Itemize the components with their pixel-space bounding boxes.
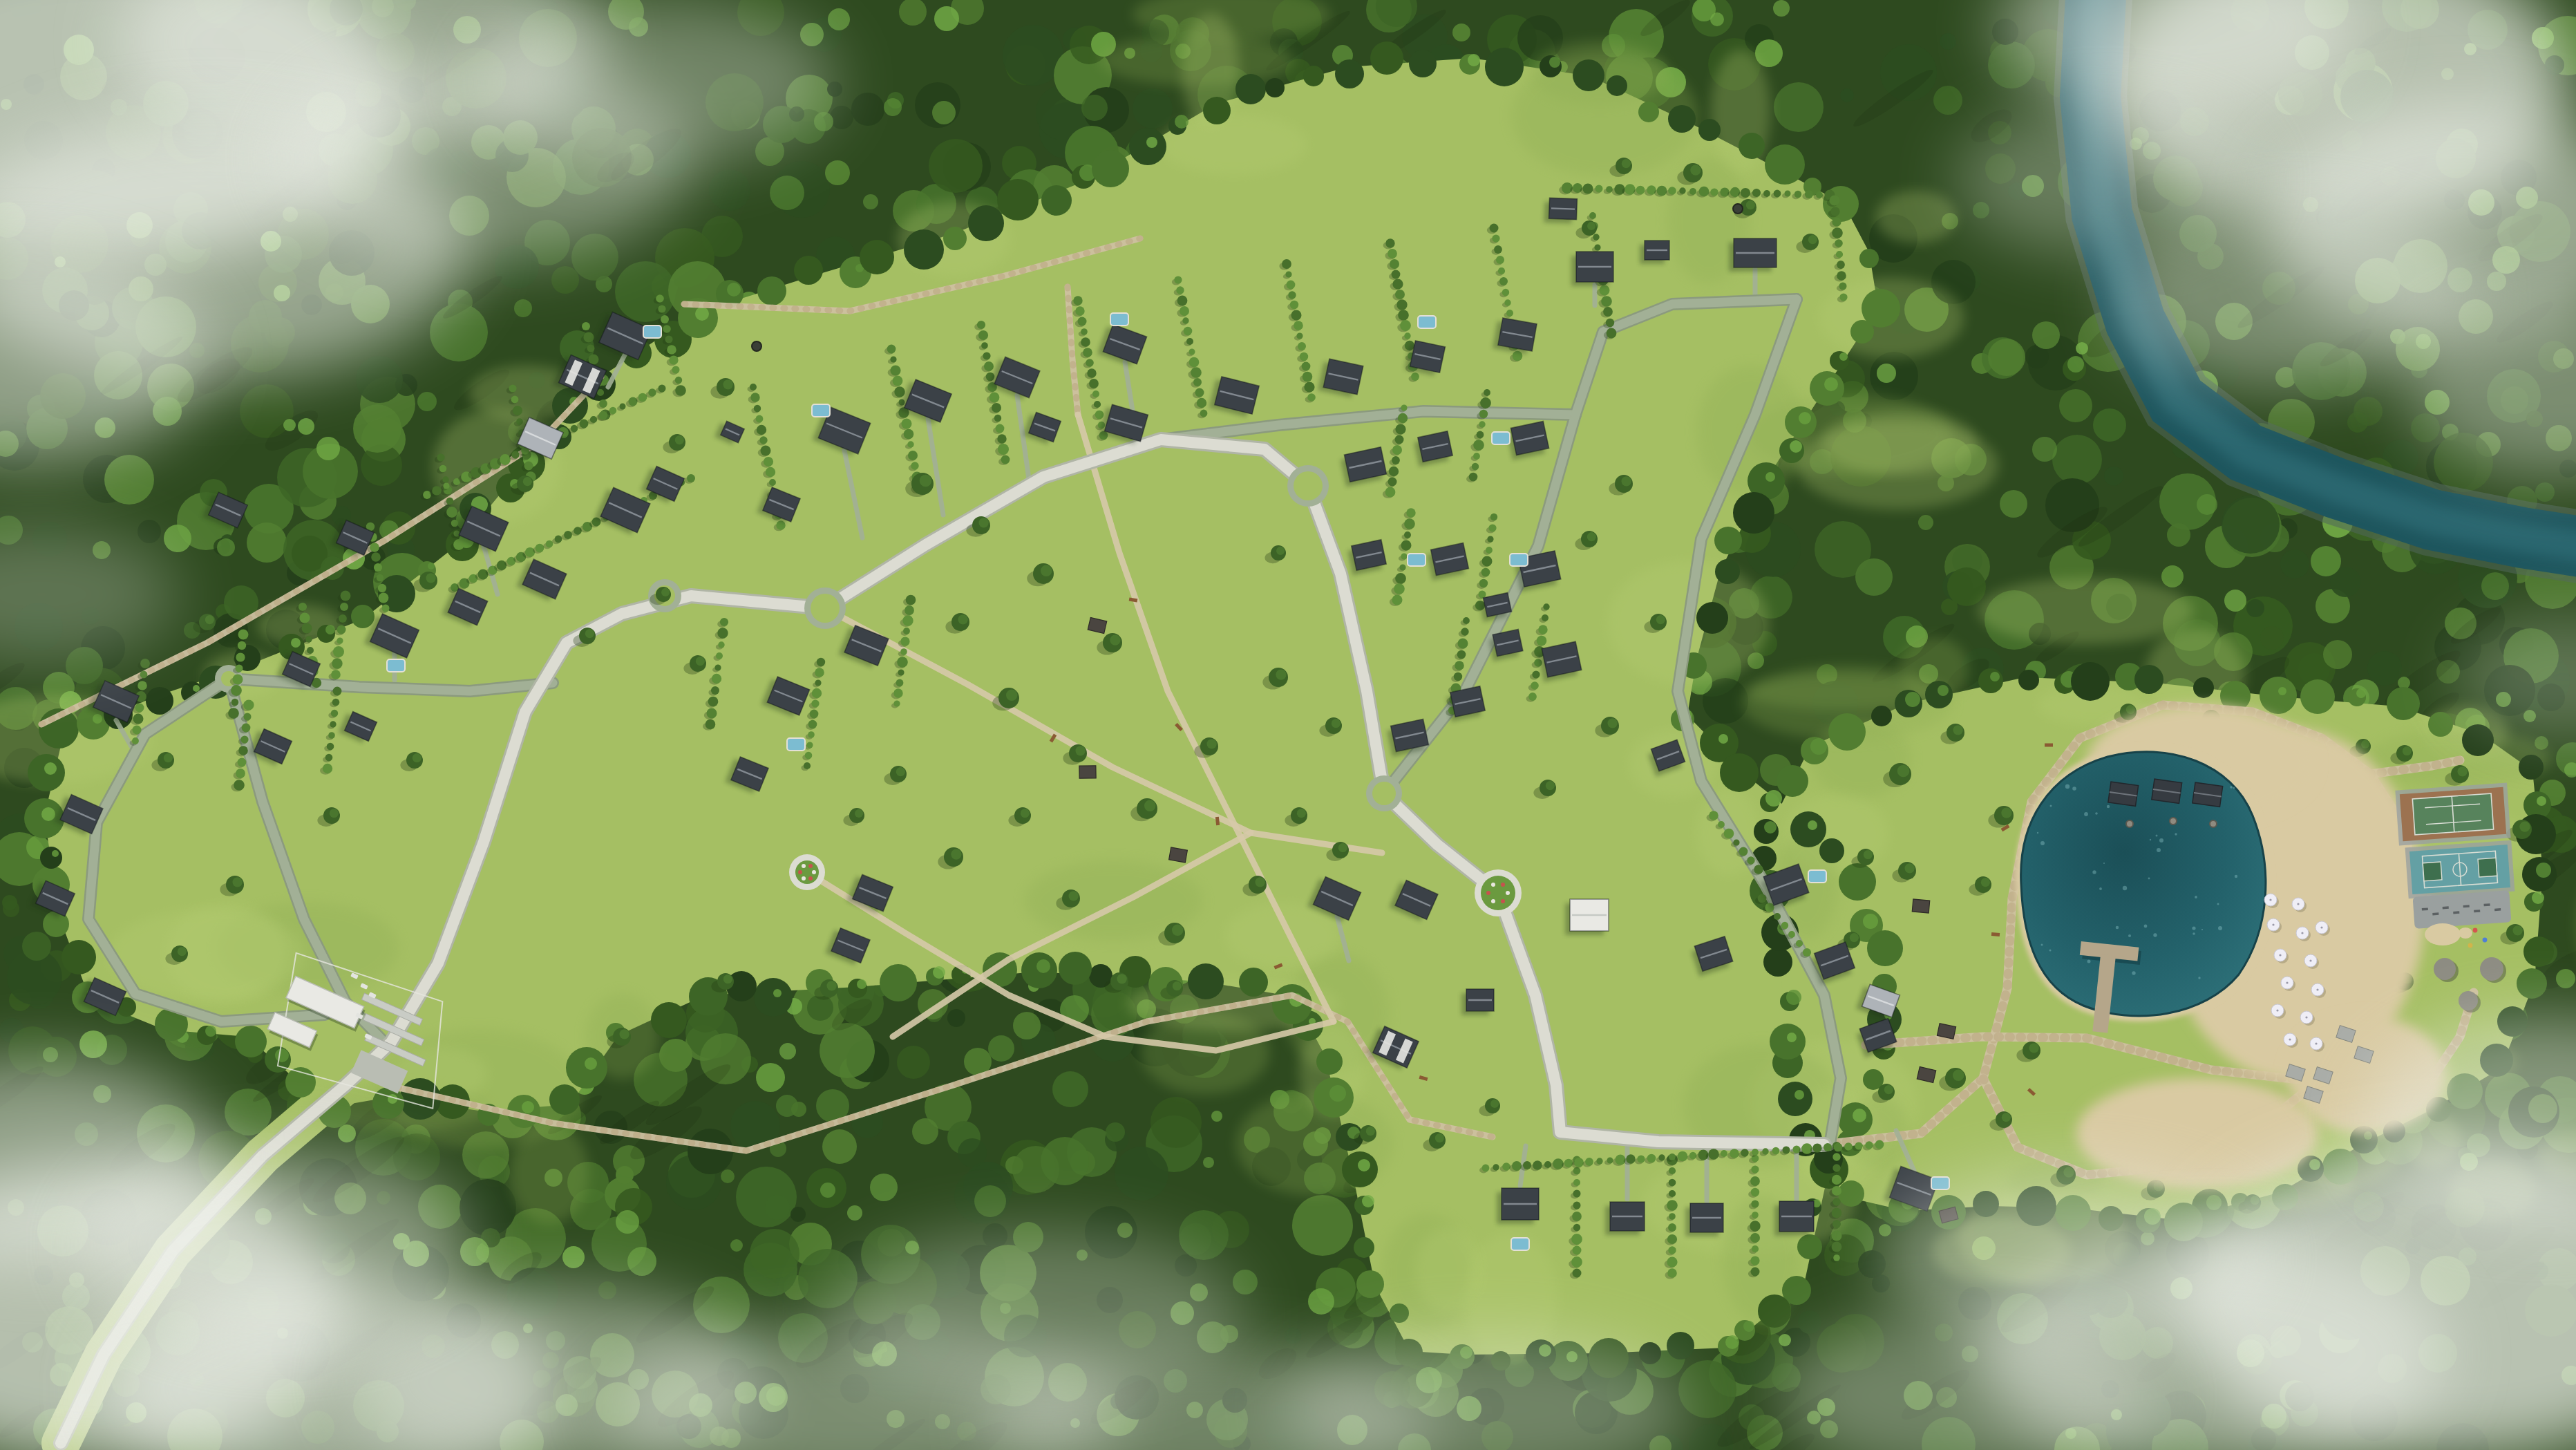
edge-tree bbox=[1335, 59, 1364, 88]
edge-tree-highlight bbox=[727, 283, 741, 296]
roundabout-flower bbox=[1501, 899, 1505, 903]
hedge-bush bbox=[1837, 271, 1846, 281]
hedge-bush bbox=[1606, 319, 1614, 327]
edge-tree-highlight bbox=[193, 685, 200, 692]
hedge-bush bbox=[242, 724, 251, 733]
edge-tree bbox=[1059, 952, 1092, 985]
hedge-bush bbox=[1741, 1149, 1748, 1156]
hedge-bush bbox=[1189, 357, 1200, 368]
hedge-bush bbox=[332, 699, 340, 706]
edge-tree-highlight bbox=[1990, 672, 2000, 681]
forest-tree-blob bbox=[830, 106, 853, 129]
water-sparkle bbox=[2092, 870, 2096, 874]
hedge-bush bbox=[328, 732, 335, 739]
forest-tree-highlight bbox=[316, 437, 340, 460]
hedge-bush bbox=[1458, 639, 1468, 649]
hedge-bush bbox=[1844, 1142, 1853, 1151]
hedge-bush bbox=[509, 384, 516, 392]
umbrella-pole bbox=[2305, 1016, 2307, 1018]
forest-tree-highlight bbox=[2067, 356, 2084, 373]
forest-tree-blob bbox=[736, 1167, 797, 1227]
edge-tree bbox=[2428, 712, 2453, 737]
hedge-bush bbox=[815, 679, 821, 686]
hedge-bush bbox=[1752, 1245, 1759, 1252]
water-sparkle bbox=[2095, 812, 2098, 815]
hedge-bush bbox=[140, 659, 150, 668]
edge-tree bbox=[1370, 41, 1403, 75]
forest-tree-blob bbox=[958, 1138, 987, 1167]
hedge-bush bbox=[708, 697, 719, 707]
grass-patch bbox=[1711, 50, 1770, 174]
edge-tree bbox=[1573, 59, 1604, 91]
hedge-bush bbox=[661, 315, 669, 323]
hedge-bush bbox=[1401, 404, 1407, 411]
tree-highlight bbox=[1338, 843, 1347, 852]
water-sparkle bbox=[2148, 878, 2150, 880]
edge-tree-highlight bbox=[1329, 1085, 1346, 1102]
edge-tree bbox=[997, 179, 1039, 220]
hedge-bush bbox=[1307, 393, 1316, 402]
hedge-bush bbox=[1832, 1242, 1842, 1252]
edge-tree-highlight bbox=[773, 989, 782, 997]
tree-highlight bbox=[1850, 933, 1859, 942]
hedge-bush bbox=[1411, 373, 1419, 381]
hedge-bush bbox=[1388, 249, 1397, 258]
umbrella-pole bbox=[2297, 903, 2299, 905]
edge-tree bbox=[40, 847, 62, 869]
hedge-bush bbox=[1398, 413, 1408, 423]
edge-tree-highlight bbox=[1853, 1109, 1866, 1122]
hedge-bush bbox=[1531, 681, 1539, 690]
edge-tree bbox=[1839, 863, 1876, 901]
edge-tree bbox=[1485, 48, 1524, 86]
workout-equipment bbox=[2494, 908, 2501, 911]
hedge-bush bbox=[1606, 186, 1613, 193]
edge-tree bbox=[1850, 320, 1874, 343]
hedge-bush bbox=[1794, 191, 1801, 198]
pond-water bbox=[2021, 752, 2266, 1016]
hedge-bush bbox=[977, 321, 985, 329]
forest-tree-highlight bbox=[2224, 590, 2246, 612]
hedge-bush bbox=[1803, 948, 1811, 957]
swimming-pool bbox=[643, 326, 661, 338]
edge-tree-highlight bbox=[1718, 734, 1728, 744]
hedge-bush bbox=[659, 385, 666, 393]
edge-tree bbox=[1790, 811, 1826, 847]
swimming-pool bbox=[787, 738, 805, 751]
hedge-bush bbox=[1288, 291, 1296, 299]
roundabout-flower bbox=[1491, 899, 1495, 903]
forest-tree-blob bbox=[2052, 435, 2102, 484]
hedge-bush bbox=[1585, 1158, 1593, 1166]
forest-tree-highlight bbox=[2311, 546, 2341, 576]
swimming-pool bbox=[1408, 554, 1426, 566]
hedge-bush bbox=[717, 628, 728, 638]
hedge-bush bbox=[437, 453, 444, 461]
hedge-bush bbox=[1730, 1149, 1739, 1158]
hedge-bush bbox=[984, 361, 994, 371]
forest-tree-blob bbox=[988, 1035, 1014, 1062]
forest-tree-blob bbox=[791, 1102, 806, 1117]
hedge-bush bbox=[1747, 856, 1754, 864]
hedge-bush bbox=[1390, 259, 1399, 269]
grass-patch bbox=[1415, 1227, 1483, 1313]
hedge-bush bbox=[1699, 187, 1710, 197]
house bbox=[1493, 317, 1537, 355]
hedge-bush bbox=[1752, 1149, 1759, 1156]
hedge-bush bbox=[299, 612, 310, 623]
hedge-bush bbox=[1528, 693, 1537, 701]
hedge-bush bbox=[231, 685, 242, 696]
umbrella-pole bbox=[2272, 923, 2274, 925]
well bbox=[1733, 204, 1743, 214]
forest-tree-blob bbox=[1117, 1223, 1133, 1238]
hedge-bush bbox=[1395, 290, 1405, 299]
hedge-bush bbox=[1750, 1256, 1759, 1265]
hedge-bush bbox=[1300, 352, 1308, 361]
hedge-bush bbox=[893, 700, 900, 706]
hedge-bush bbox=[1865, 1141, 1873, 1149]
hedge-bush bbox=[1774, 190, 1781, 198]
hedge-bush bbox=[1399, 564, 1405, 570]
hedge-bush bbox=[1571, 1234, 1582, 1245]
tree-highlight bbox=[896, 767, 905, 776]
hedge-bush bbox=[1832, 1231, 1842, 1241]
hedge-bush bbox=[1573, 1179, 1580, 1186]
forest-tree-blob bbox=[2323, 640, 2352, 669]
hedge-bush bbox=[236, 769, 245, 778]
water-sparkle bbox=[2065, 784, 2070, 789]
tree-highlight bbox=[1297, 809, 1306, 818]
edge-tree bbox=[1777, 765, 1808, 797]
tree-highlight bbox=[723, 974, 732, 983]
firepit bbox=[2210, 820, 2217, 827]
hedge-bush bbox=[1589, 212, 1596, 219]
hedge-bush bbox=[1751, 1165, 1759, 1173]
hedge-bush bbox=[1594, 244, 1600, 250]
edge-tree bbox=[943, 227, 967, 250]
basketball-key bbox=[2478, 858, 2497, 877]
hedge-bush bbox=[1484, 389, 1490, 396]
edge-tree bbox=[1203, 97, 1231, 124]
tree-highlight bbox=[1746, 200, 1755, 209]
basketball-key bbox=[2423, 862, 2442, 881]
edge-tree bbox=[1667, 1332, 1694, 1359]
hedge-bush bbox=[451, 520, 459, 527]
edge-tree bbox=[549, 1084, 580, 1115]
hedge-bush bbox=[687, 474, 695, 482]
playground-toy bbox=[2483, 938, 2488, 943]
roundabout-flower bbox=[802, 864, 806, 868]
edge-tree bbox=[1838, 1180, 1864, 1207]
tree-highlight bbox=[1864, 850, 1873, 859]
hedge-bush bbox=[1472, 463, 1479, 470]
hedge-bush bbox=[1174, 276, 1182, 283]
forest-tree-blob bbox=[1452, 23, 1470, 41]
hedge-bush bbox=[1571, 1256, 1582, 1268]
edge-tree bbox=[2517, 968, 2547, 999]
hedge-bush bbox=[1582, 183, 1593, 194]
water-sparkle bbox=[2150, 839, 2151, 840]
forest-tree-blob bbox=[2093, 408, 2126, 442]
hedge-bush bbox=[1636, 186, 1645, 195]
edge-tree bbox=[2387, 687, 2420, 720]
house bbox=[1605, 1202, 1645, 1235]
edge-tree bbox=[2071, 662, 2110, 701]
hedge-bush bbox=[1398, 310, 1409, 321]
water-sparkle bbox=[2235, 875, 2237, 878]
tree-highlight bbox=[1981, 878, 1990, 887]
hedge-bush bbox=[817, 658, 825, 666]
hedge-bush bbox=[1774, 913, 1781, 920]
hedge-bush bbox=[1463, 617, 1470, 624]
house bbox=[1685, 1203, 1723, 1236]
hedge-bush bbox=[890, 365, 900, 375]
hedge-bush bbox=[1750, 1233, 1760, 1243]
hedge-bush bbox=[233, 675, 243, 685]
water-sparkle bbox=[2217, 903, 2219, 905]
edge-tree-highlight bbox=[275, 1048, 289, 1062]
tree-highlight bbox=[1904, 863, 1914, 873]
forest-tree-blob bbox=[851, 93, 884, 126]
forest-tree-blob bbox=[820, 1023, 875, 1078]
edge-tree bbox=[146, 687, 173, 715]
edge-tree-highlight bbox=[857, 979, 866, 989]
hedge-bush bbox=[1490, 224, 1499, 233]
hedge-bush bbox=[378, 584, 386, 592]
hedge-bush bbox=[905, 605, 914, 615]
hedge-bush bbox=[1392, 279, 1403, 289]
hedge-bush bbox=[658, 305, 665, 312]
hedge-bush bbox=[1469, 473, 1478, 482]
hedge-bush bbox=[1532, 670, 1540, 678]
hedge-bush bbox=[1287, 281, 1296, 290]
hedge-bush bbox=[1404, 531, 1411, 538]
tree-highlight bbox=[1435, 1133, 1444, 1142]
edge-tree bbox=[2523, 936, 2554, 967]
hedge-bush bbox=[897, 657, 908, 668]
hedge-bush bbox=[307, 647, 314, 654]
tree-highlight bbox=[1021, 809, 1030, 818]
tree-highlight bbox=[696, 657, 705, 666]
hedge-bush bbox=[1750, 1176, 1760, 1186]
hedge-bush bbox=[1189, 349, 1195, 355]
hedge-bush bbox=[1573, 1224, 1580, 1231]
edge-tree bbox=[880, 964, 917, 1001]
hedge-bush bbox=[1081, 328, 1088, 335]
hedge-bush bbox=[1678, 1151, 1688, 1162]
hedge-bush bbox=[1486, 547, 1493, 554]
hedge-bush bbox=[1668, 1246, 1676, 1254]
hedge-bush bbox=[1832, 1186, 1841, 1196]
hedge-bush bbox=[331, 710, 338, 717]
forest-tree-highlight bbox=[2161, 565, 2184, 587]
hedge-bush bbox=[1197, 398, 1206, 408]
workout-equipment bbox=[2443, 906, 2449, 909]
hedge-bush bbox=[1835, 239, 1843, 247]
edge-tree-highlight bbox=[1743, 1321, 1754, 1332]
garden-shed bbox=[1169, 847, 1188, 863]
forest-tree-blob bbox=[2167, 523, 2190, 547]
tree-highlight bbox=[1117, 974, 1126, 983]
edge-tree bbox=[1356, 1270, 1384, 1298]
forest-tree-blob bbox=[1798, 1310, 1821, 1334]
tree-highlight bbox=[178, 947, 187, 956]
tree-highlight bbox=[1255, 877, 1265, 887]
hedge-bush bbox=[1603, 307, 1613, 317]
edge-tree bbox=[1925, 681, 1953, 708]
workout-equipment bbox=[2422, 907, 2428, 910]
forest-tree-blob bbox=[822, 1129, 857, 1164]
edge-tree bbox=[1235, 74, 1266, 104]
hedge-bush bbox=[1763, 190, 1770, 197]
hedge-bush bbox=[582, 322, 590, 330]
tree-highlight bbox=[1622, 159, 1631, 168]
hedge-bush bbox=[333, 646, 344, 657]
hedge-bush bbox=[1830, 207, 1839, 216]
forest-tree-blob bbox=[1013, 1012, 1041, 1039]
edge-tree-highlight bbox=[1786, 990, 1801, 1005]
edge-tree bbox=[1758, 1294, 1791, 1328]
hedge-bush bbox=[609, 407, 616, 414]
grass-patch bbox=[1797, 421, 1998, 509]
hedge-bush bbox=[583, 332, 594, 342]
forest-tree-blob bbox=[353, 404, 401, 453]
hedge-bush bbox=[1494, 245, 1502, 254]
forest-tree-blob bbox=[1774, 82, 1824, 132]
edge-tree-highlight bbox=[1764, 821, 1777, 834]
house bbox=[1774, 1201, 1814, 1236]
hedge-bush bbox=[1512, 1161, 1522, 1171]
hedge-bush bbox=[1574, 1158, 1584, 1167]
edge-tree-highlight bbox=[1905, 692, 1920, 707]
hedge-bush bbox=[1783, 1147, 1790, 1154]
water-sparkle bbox=[2201, 929, 2203, 930]
hedge-bush bbox=[761, 446, 771, 456]
house bbox=[1461, 989, 1494, 1015]
hedge-bush bbox=[806, 742, 813, 748]
water-sparkle bbox=[2230, 786, 2233, 789]
forest-tree-blob bbox=[1840, 88, 1854, 102]
hedge-bush bbox=[382, 605, 390, 612]
hedge-bush bbox=[894, 386, 905, 397]
hedge-bush bbox=[1752, 1212, 1759, 1218]
edge-tree-highlight bbox=[585, 1057, 597, 1070]
water-sparkle bbox=[2084, 812, 2088, 816]
water-sparkle bbox=[2192, 926, 2195, 930]
hedge-bush bbox=[231, 699, 238, 706]
edge-tree-highlight bbox=[2356, 688, 2366, 698]
hedge-bush bbox=[238, 630, 249, 640]
bench bbox=[2045, 744, 2053, 747]
tree-highlight bbox=[2361, 740, 2369, 748]
tree-highlight bbox=[1276, 547, 1285, 555]
hedge-bush bbox=[305, 636, 312, 642]
hedge-bush bbox=[902, 615, 913, 625]
forest-tree-blob bbox=[2032, 321, 2060, 349]
hedge-bush bbox=[898, 669, 904, 675]
hedge-bush bbox=[1083, 348, 1092, 357]
forest-tree-highlight bbox=[627, 1247, 656, 1276]
hedge-bush bbox=[1718, 821, 1725, 828]
forest-tree-blob bbox=[912, 1118, 938, 1145]
edge-tree-highlight bbox=[428, 563, 435, 569]
basketball-court bbox=[2405, 840, 2515, 899]
tree-highlight bbox=[951, 849, 961, 859]
fog-patch bbox=[477, 0, 836, 166]
edge-tree-highlight bbox=[1790, 440, 1802, 453]
hedge-bush bbox=[981, 342, 988, 349]
forest-tree-blob bbox=[1918, 515, 1933, 530]
edge-tree bbox=[235, 1026, 267, 1057]
scene-root bbox=[0, 0, 2576, 1450]
hedge-bush bbox=[1750, 1221, 1760, 1231]
hedge-bush bbox=[1488, 524, 1496, 531]
hedge-bush bbox=[243, 699, 254, 710]
house bbox=[1571, 252, 1613, 286]
hedge-bush bbox=[1490, 514, 1497, 520]
edge-tree bbox=[1303, 66, 1324, 86]
roundabout-flower bbox=[1486, 891, 1490, 895]
hedge-bush bbox=[1839, 293, 1847, 301]
hedge-bush bbox=[1824, 1143, 1832, 1151]
edge-tree-highlight bbox=[2536, 863, 2551, 878]
tree-highlight bbox=[426, 573, 435, 583]
hedge-bush bbox=[1839, 283, 1847, 290]
hedge-bush bbox=[432, 486, 442, 496]
house bbox=[1497, 1188, 1539, 1224]
hedge-bush bbox=[1195, 388, 1204, 397]
hedge-bush bbox=[1739, 847, 1748, 856]
playground-sand bbox=[2425, 923, 2461, 945]
tree-highlight bbox=[1172, 925, 1184, 936]
roundabout-flower bbox=[798, 870, 802, 874]
umbrella-pole bbox=[2309, 959, 2311, 961]
hedge-bush bbox=[1832, 217, 1841, 226]
hedge-bush bbox=[1073, 296, 1082, 305]
edge-tree bbox=[904, 229, 944, 270]
forest-tree-blob bbox=[770, 176, 804, 210]
water-sparkle bbox=[2153, 933, 2157, 936]
forest-tree-blob bbox=[2104, 467, 2123, 486]
tree-highlight bbox=[585, 629, 594, 638]
hedge-bush bbox=[764, 457, 773, 467]
well bbox=[752, 341, 761, 351]
hedge-bush bbox=[443, 482, 449, 489]
forest-tree-blob bbox=[765, 1195, 790, 1220]
roundabout-flower bbox=[1506, 891, 1510, 895]
hedge-bush bbox=[665, 335, 672, 343]
water-sparkle bbox=[2132, 971, 2135, 974]
hedge-bush bbox=[1781, 922, 1788, 929]
hedge-bush bbox=[1812, 1143, 1821, 1152]
swimming-pool bbox=[387, 659, 405, 672]
edge-tree-highlight bbox=[2278, 687, 2286, 695]
climbing-rock bbox=[2434, 958, 2456, 980]
edge-tree bbox=[1714, 527, 1742, 554]
hedge-bush bbox=[675, 385, 686, 396]
tree-highlight bbox=[330, 809, 339, 818]
hedge-bush bbox=[228, 708, 239, 719]
hedge-bush bbox=[1593, 234, 1599, 240]
hedge-bush bbox=[1829, 195, 1839, 205]
edge-tree-highlight bbox=[1362, 1195, 1374, 1207]
water-sparkle bbox=[2175, 833, 2177, 835]
hedge-bush bbox=[900, 637, 909, 646]
edge-tree bbox=[2462, 724, 2494, 756]
hedge-bush bbox=[333, 687, 342, 696]
hedge-bush bbox=[1667, 1200, 1678, 1211]
